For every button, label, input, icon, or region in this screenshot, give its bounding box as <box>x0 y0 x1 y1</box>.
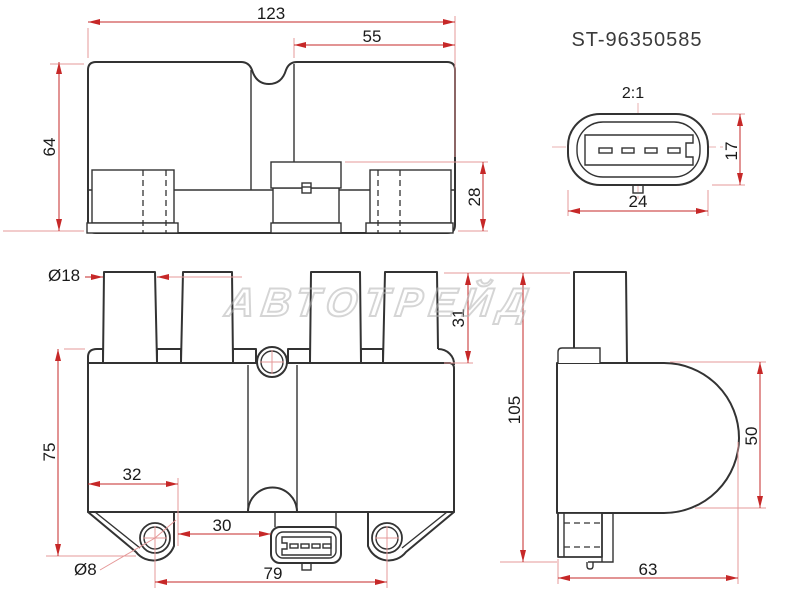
dim-tower-diameter: Ø18 <box>48 266 80 285</box>
side-view: 50 63 <box>557 272 766 584</box>
dim-round-body-height: 50 <box>742 427 761 446</box>
drawing-page: АВТОТРЕЙД <box>0 0 800 600</box>
dim-right-section-width: 55 <box>363 27 382 46</box>
dim-connector-width: 24 <box>629 192 648 211</box>
dim-overall-depth: 64 <box>40 138 59 157</box>
side-ledge <box>558 348 600 363</box>
detail-scale-label: 2:1 <box>622 85 644 102</box>
watermark: АВТОТРЕЙД <box>223 281 538 326</box>
dim-mount-hole-spacing: 79 <box>264 564 283 583</box>
dim-overall-width: 123 <box>257 4 285 23</box>
dim-overall-height: 105 <box>505 396 524 424</box>
connector-detail-view: ST-96350585 2:1 17 24 <box>552 29 745 216</box>
dim-side-depth: 63 <box>639 560 658 579</box>
top-right-block <box>370 170 451 223</box>
dim-mount-hole-offset: 32 <box>123 465 142 484</box>
dim-mount-hole-diameter: Ø8 <box>74 560 97 579</box>
dim-connector-block-height: 28 <box>465 188 484 207</box>
dim-body-height: 75 <box>40 443 59 462</box>
side-body-outline <box>557 363 739 513</box>
dim-connector-height: 17 <box>722 142 741 161</box>
front-body-outline <box>88 363 454 512</box>
part-number: ST-96350585 <box>571 29 702 51</box>
top-view: 123 55 64 28 <box>3 4 488 233</box>
front-connector <box>271 512 341 570</box>
top-left-block <box>92 170 174 223</box>
dim-connector-offset: 30 <box>213 516 232 535</box>
